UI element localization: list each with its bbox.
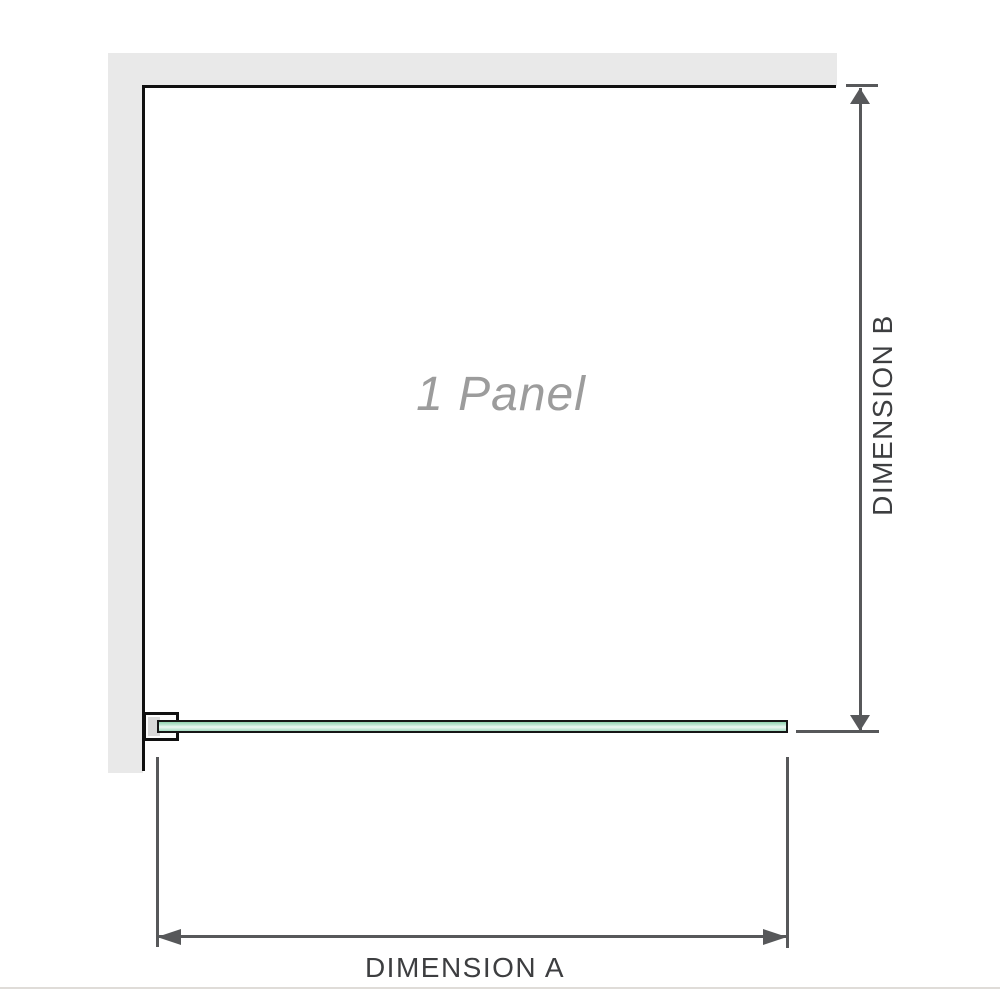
diagram-canvas: 1 Panel DIMENSION B DIMENSION A — [0, 0, 1000, 1000]
arrow-down-icon — [850, 715, 870, 731]
dimension-a-extension-left — [156, 757, 159, 947]
wall-left — [108, 53, 143, 773]
arrow-right-icon — [763, 929, 787, 945]
dimension-b-tick-top — [846, 84, 878, 87]
dimension-a-line — [157, 935, 787, 938]
panel-count-label: 1 Panel — [341, 365, 661, 425]
page-bottom-rule — [0, 987, 1000, 989]
wall-inner-edge-top — [143, 85, 836, 88]
arrow-up-icon — [850, 88, 870, 104]
glass-panel-top-view — [157, 720, 788, 733]
arrow-left-icon — [157, 929, 181, 945]
dimension-a-label: DIMENSION A — [305, 950, 625, 986]
wall-inner-edge-left — [142, 85, 145, 771]
dimension-b-line — [859, 88, 862, 731]
wall-top — [108, 53, 837, 86]
dimension-b-label: DIMENSION B — [863, 255, 903, 575]
dimension-a-extension-right — [786, 757, 789, 948]
